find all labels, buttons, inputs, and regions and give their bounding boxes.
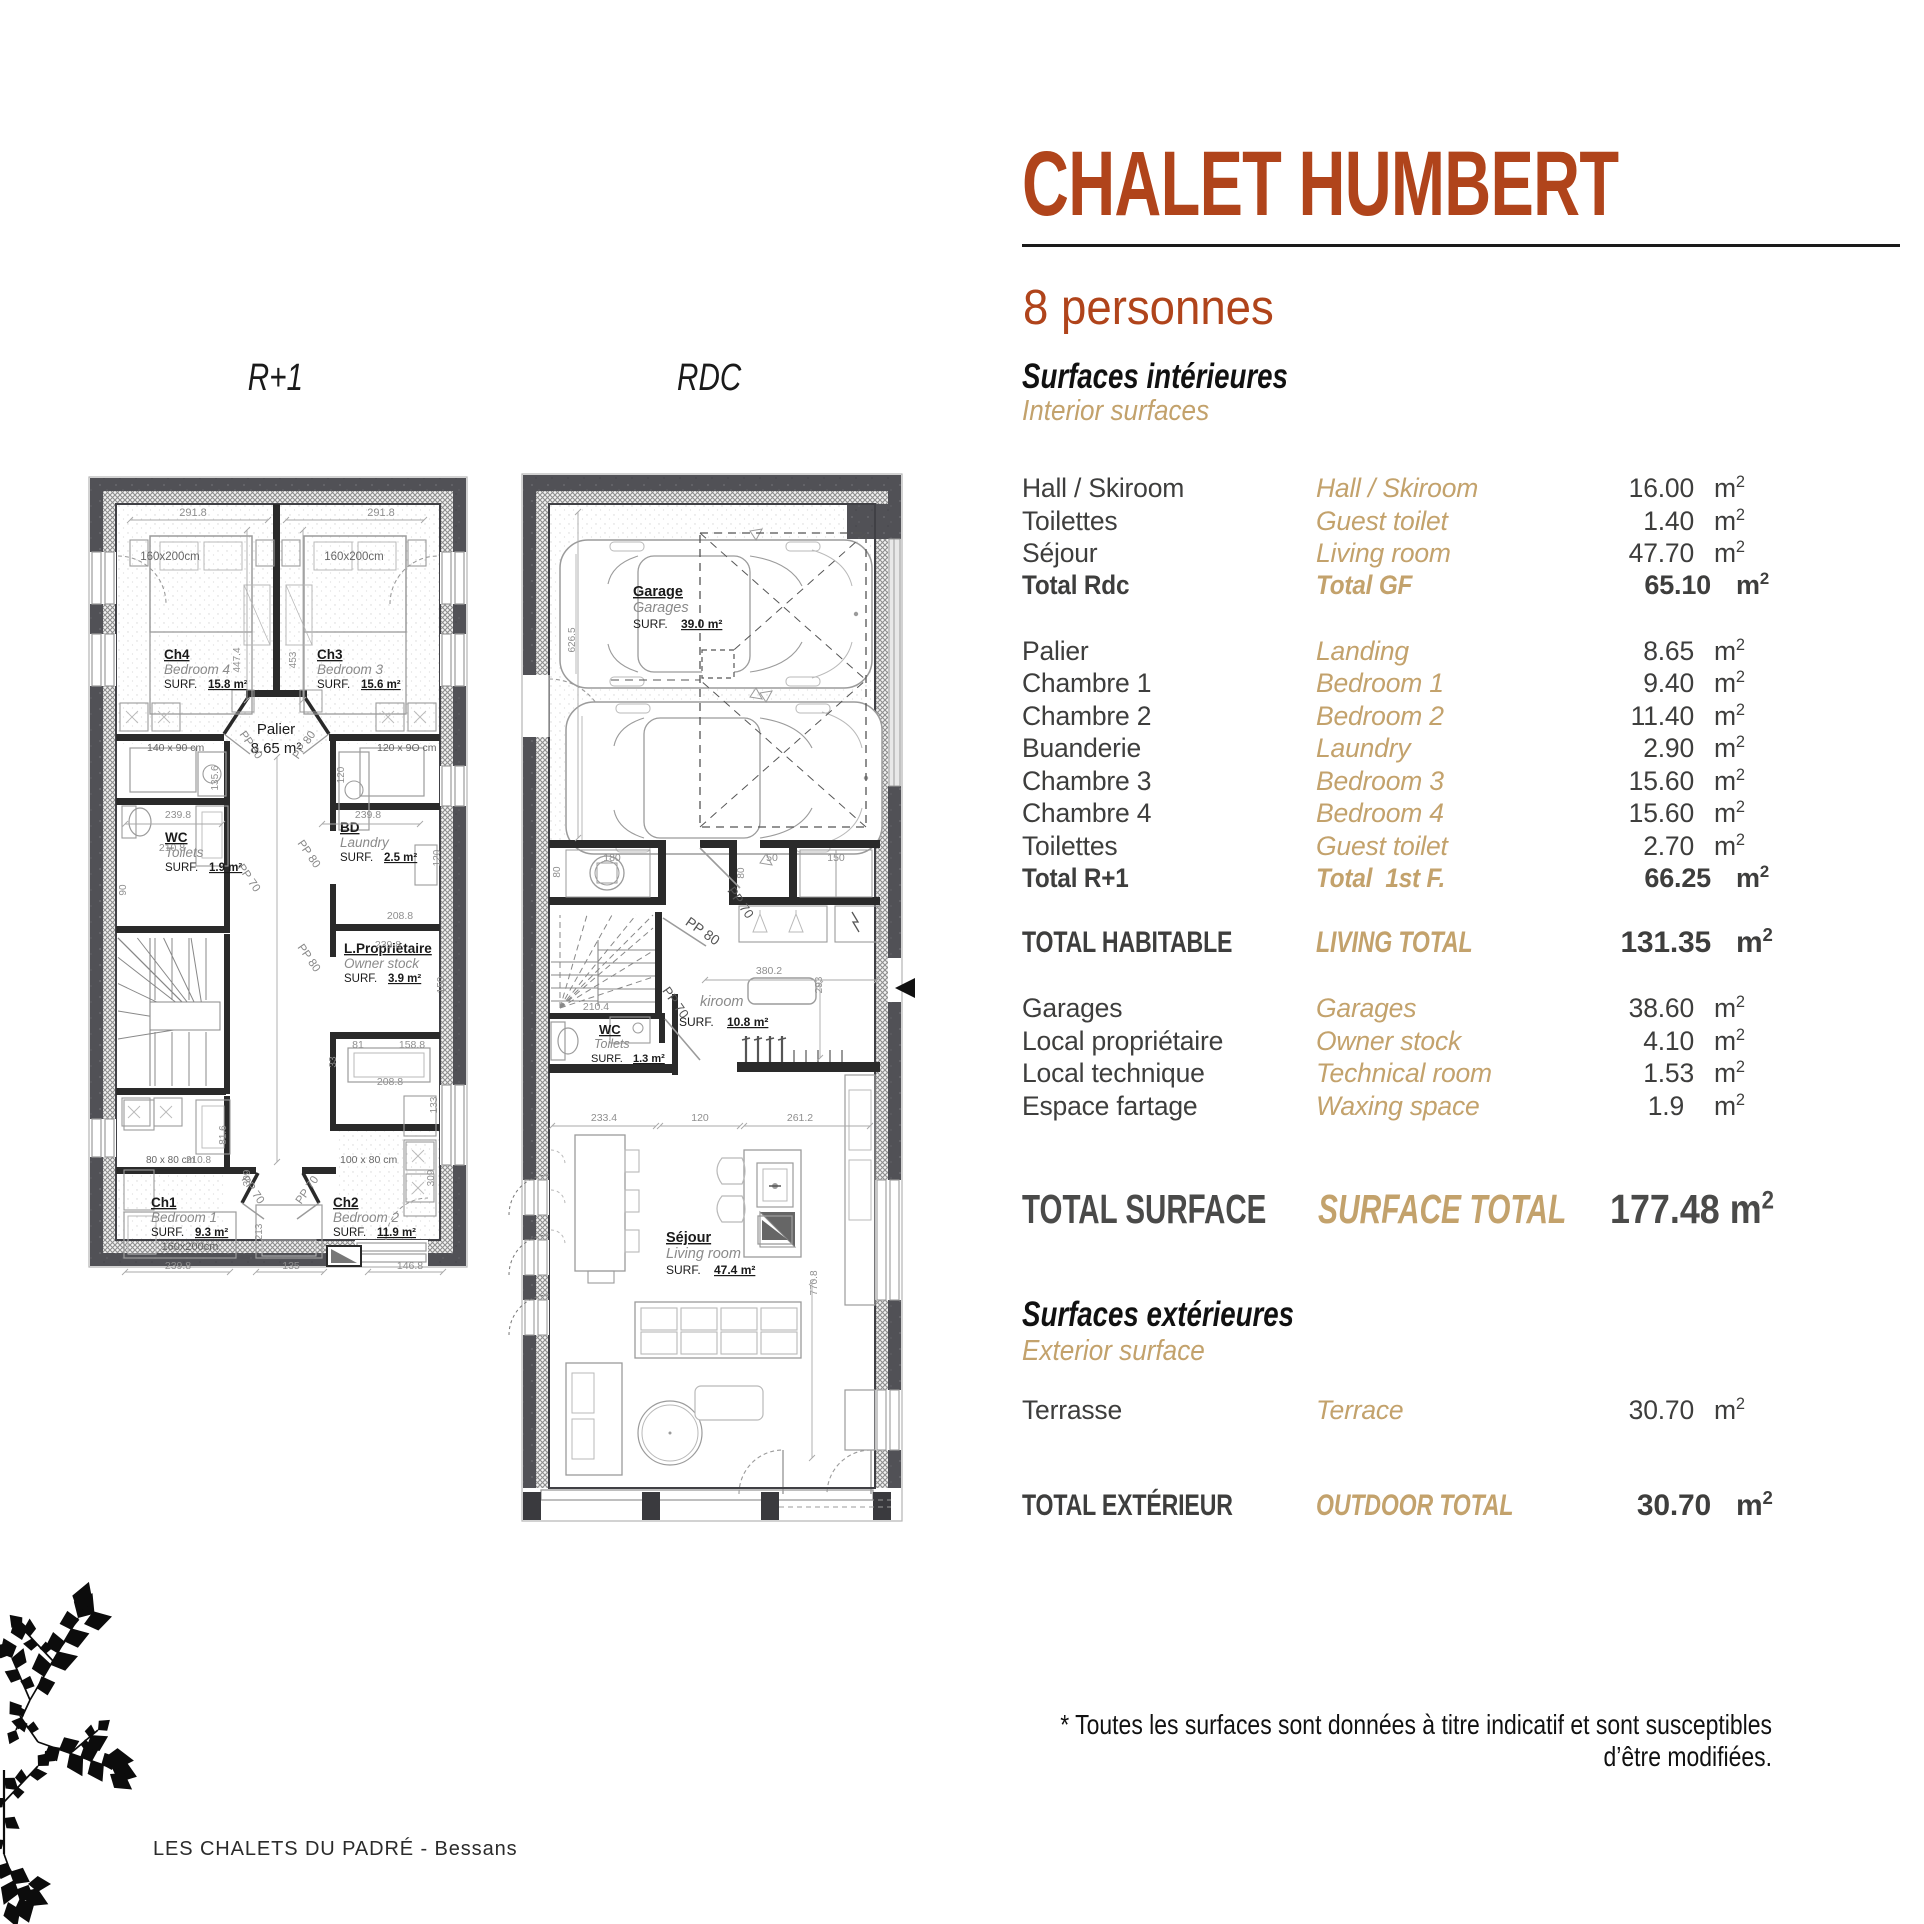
svg-text:Bedroom 4: Bedroom 4 xyxy=(164,662,230,677)
svg-text:81.6: 81.6 xyxy=(218,1125,229,1145)
svg-text:BD: BD xyxy=(340,820,360,835)
svg-text:626.5: 626.5 xyxy=(567,627,578,652)
svg-text:Bedroom 3: Bedroom 3 xyxy=(317,662,384,677)
svg-text:15.6 m²: 15.6 m² xyxy=(361,679,401,691)
svg-text:135.6: 135.6 xyxy=(210,765,221,790)
svg-text:133: 133 xyxy=(429,1096,440,1113)
svg-text:120: 120 xyxy=(432,849,443,866)
svg-text:Ch2: Ch2 xyxy=(333,1195,359,1210)
svg-text:309: 309 xyxy=(426,1169,437,1186)
svg-text:453: 453 xyxy=(288,651,299,668)
svg-text:Garage: Garage xyxy=(633,584,683,600)
svg-text:15.8 m²: 15.8 m² xyxy=(208,679,248,691)
svg-text:210.8: 210.8 xyxy=(186,1155,211,1166)
svg-text:380.2: 380.2 xyxy=(756,965,782,977)
svg-text:SURF.: SURF. xyxy=(666,1263,701,1277)
svg-text:Ch4: Ch4 xyxy=(164,647,190,662)
svg-text:150: 150 xyxy=(436,976,447,993)
svg-text:50: 50 xyxy=(766,852,778,864)
svg-text:SURF.: SURF. xyxy=(317,679,350,691)
svg-text:120 x 9O cm: 120 x 9O cm xyxy=(377,742,437,754)
svg-text:80: 80 xyxy=(736,867,747,879)
svg-text:9.3 m²: 9.3 m² xyxy=(195,1227,228,1239)
svg-text:140 x 90 cm: 140 x 90 cm xyxy=(147,742,204,754)
svg-text:160x200cm: 160x200cm xyxy=(140,551,199,563)
svg-text:180: 180 xyxy=(603,852,621,864)
svg-text:160x200cm: 160x200cm xyxy=(162,1241,219,1253)
svg-text:80: 80 xyxy=(552,866,563,878)
svg-text:Owner stock: Owner stock xyxy=(344,956,420,971)
svg-text:210.8: 210.8 xyxy=(159,842,185,854)
svg-text:SURF.: SURF. xyxy=(344,973,377,985)
svg-text:47.4 m²: 47.4 m² xyxy=(714,1263,755,1277)
svg-text:SURF.: SURF. xyxy=(165,862,198,874)
svg-text:239.8: 239.8 xyxy=(165,809,191,821)
svg-text:239.8: 239.8 xyxy=(375,939,401,951)
svg-text:158.8: 158.8 xyxy=(399,1039,425,1051)
svg-text:kiroom: kiroom xyxy=(700,994,744,1010)
svg-text:291.8: 291.8 xyxy=(179,507,207,519)
svg-text:33: 33 xyxy=(328,1056,339,1068)
svg-text:160x200cm: 160x200cm xyxy=(324,551,383,563)
svg-text:3.9 m²: 3.9 m² xyxy=(388,973,421,985)
svg-text:SURF.: SURF. xyxy=(333,1227,366,1239)
svg-text:SURF.: SURF. xyxy=(591,1053,623,1065)
svg-text:39.0 m²: 39.0 m² xyxy=(681,617,722,631)
svg-text:146.8: 146.8 xyxy=(397,1260,423,1272)
svg-text:Living room: Living room xyxy=(666,1246,741,1262)
svg-text:Toilets: Toilets xyxy=(594,1037,630,1051)
svg-text:239.8: 239.8 xyxy=(165,1260,191,1272)
svg-text:81: 81 xyxy=(352,1039,364,1051)
svg-text:Garages: Garages xyxy=(633,600,689,616)
svg-text:SURF.: SURF. xyxy=(340,852,373,864)
svg-text:SURF.: SURF. xyxy=(151,1227,184,1239)
svg-text:447.4: 447.4 xyxy=(232,647,243,672)
svg-text:Laundry: Laundry xyxy=(340,835,390,850)
svg-text:11.9 m²: 11.9 m² xyxy=(377,1227,416,1239)
svg-text:150: 150 xyxy=(827,852,845,864)
svg-text:239.8: 239.8 xyxy=(355,809,381,821)
svg-text:100 x 80 cm: 100 x 80 cm xyxy=(340,1154,397,1166)
svg-text:120: 120 xyxy=(336,766,347,783)
svg-text:2.5 m²: 2.5 m² xyxy=(384,852,417,864)
svg-text:210.4: 210.4 xyxy=(583,1001,609,1013)
svg-text:90: 90 xyxy=(118,884,129,896)
svg-text:261.2: 261.2 xyxy=(787,1112,813,1124)
svg-text:Ch1: Ch1 xyxy=(151,1195,177,1210)
svg-text:291.8: 291.8 xyxy=(367,507,395,519)
svg-text:208.8: 208.8 xyxy=(377,1076,403,1088)
svg-text:1.3 m²: 1.3 m² xyxy=(633,1053,665,1065)
svg-text:Séjour: Séjour xyxy=(666,1230,711,1246)
svg-text:120: 120 xyxy=(691,1112,709,1124)
svg-text:213: 213 xyxy=(254,1223,265,1240)
svg-text:Bedroom 2: Bedroom 2 xyxy=(333,1210,400,1225)
svg-text:Ch3: Ch3 xyxy=(317,647,343,662)
svg-text:Palier: Palier xyxy=(257,721,295,738)
svg-text:208.8: 208.8 xyxy=(387,910,413,922)
svg-text:SURF.: SURF. xyxy=(164,679,197,691)
svg-text:SURF.: SURF. xyxy=(633,617,668,631)
svg-text:SURF.: SURF. xyxy=(679,1015,714,1029)
svg-text:10.8 m²: 10.8 m² xyxy=(727,1015,768,1029)
svg-text:WC: WC xyxy=(599,1022,621,1037)
svg-text:135: 135 xyxy=(282,1260,300,1272)
svg-text:233.4: 233.4 xyxy=(591,1112,617,1124)
svg-text:Bedroom 1: Bedroom 1 xyxy=(151,1210,217,1225)
